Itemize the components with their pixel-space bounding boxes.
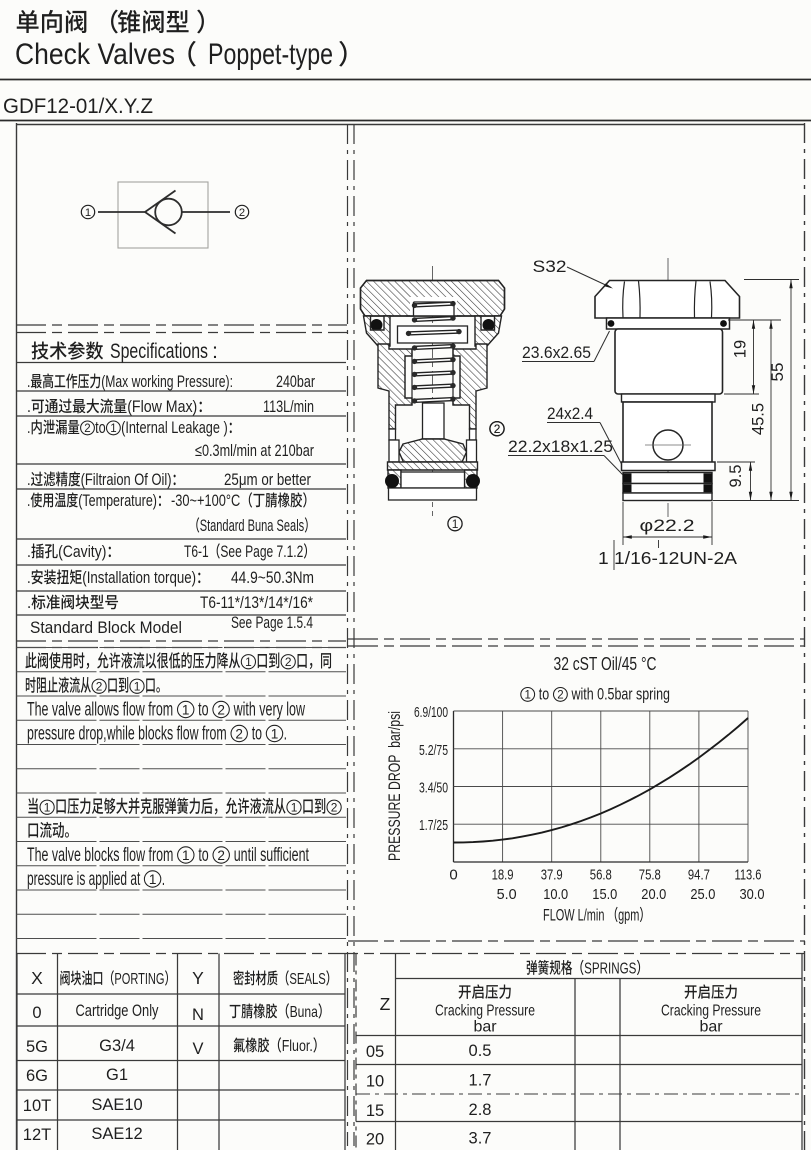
svg-text:.: . <box>27 419 31 437</box>
svg-text:9.5: 9.5 <box>727 465 745 488</box>
svg-text:2: 2 <box>217 702 225 717</box>
svg-text:pressure drop,while blocks flo: pressure drop,while blocks flow from <box>27 723 230 745</box>
svg-text:1: 1 <box>182 848 190 863</box>
svg-text:55: 55 <box>768 363 787 382</box>
svg-text:32 cST Oil/45 °C: 32 cST Oil/45 °C <box>554 653 657 674</box>
svg-text:113L/min: 113L/min <box>263 398 314 416</box>
svg-text:30.0: 30.0 <box>740 886 765 903</box>
svg-text:until sufficient: until sufficient <box>230 844 309 866</box>
svg-text:bar: bar <box>699 1019 723 1036</box>
svg-text:to: to <box>535 686 552 704</box>
svg-text::: : <box>212 339 218 363</box>
svg-text:-30~+100°C: -30~+100°C <box>171 492 240 510</box>
svg-text:23.6x2.65: 23.6x2.65 <box>522 344 591 362</box>
svg-text:T6-1: T6-1 <box>184 543 209 561</box>
svg-text:.: . <box>27 398 31 416</box>
svg-text:2.8: 2.8 <box>469 1101 492 1119</box>
svg-text:Standard Block Model: Standard Block Model <box>30 619 182 637</box>
svg-text:to: to <box>195 699 212 721</box>
svg-text:1: 1 <box>271 726 279 741</box>
svg-text:45.5: 45.5 <box>750 403 768 435</box>
svg-text:(Filtraion Of Oil): (Filtraion Of Oil) <box>81 471 172 489</box>
svg-text:15.0: 15.0 <box>592 886 617 903</box>
svg-text:56.8: 56.8 <box>590 867 612 884</box>
svg-text:GDF12-01/X.Y.Z: GDF12-01/X.Y.Z <box>3 94 153 118</box>
svg-text:.: . <box>27 594 31 612</box>
svg-text:gpm: gpm <box>618 907 639 925</box>
svg-text:to: to <box>248 723 265 745</box>
svg-text:6G: 6G <box>26 1067 48 1085</box>
svg-text:05: 05 <box>366 1043 384 1061</box>
svg-text:X: X <box>31 968 43 988</box>
svg-text:The valve blocks flow from: The valve blocks flow from <box>27 844 177 866</box>
svg-text:1: 1 <box>149 872 157 887</box>
svg-text:2: 2 <box>239 207 245 219</box>
svg-text:20: 20 <box>366 1131 384 1149</box>
svg-text:.: . <box>284 723 287 745</box>
svg-text:10T: 10T <box>23 1097 51 1115</box>
svg-text:3.7: 3.7 <box>469 1130 492 1148</box>
svg-text:1: 1 <box>182 702 190 717</box>
svg-text:1: 1 <box>85 207 91 219</box>
svg-text:to: to <box>195 844 212 866</box>
svg-text:2: 2 <box>557 690 563 702</box>
svg-text:1.7: 1.7 <box>469 1072 492 1090</box>
svg-text:1: 1 <box>245 655 252 669</box>
svg-text:Poppet-type: Poppet-type <box>208 38 333 71</box>
svg-text:0.5: 0.5 <box>469 1042 492 1060</box>
svg-text:with very low: with very low <box>230 699 305 721</box>
svg-text:.: . <box>27 492 30 510</box>
svg-text:.: . <box>27 569 31 587</box>
svg-text:(Flow Max): (Flow Max) <box>127 398 197 416</box>
svg-text:18.9: 18.9 <box>492 867 514 884</box>
svg-text:SEALS: SEALS <box>289 971 325 988</box>
svg-text:1: 1 <box>110 423 116 435</box>
svg-text:Check Valves: Check Valves <box>15 38 175 71</box>
svg-text:φ22.2: φ22.2 <box>640 516 695 535</box>
svg-text:2: 2 <box>331 801 338 815</box>
svg-text:Cracking Pressure: Cracking Pressure <box>661 1003 761 1020</box>
svg-text:SAE10: SAE10 <box>91 1096 142 1114</box>
svg-text:with 0.5bar spring: with 0.5bar spring <box>568 686 670 704</box>
svg-text:1: 1 <box>291 801 298 815</box>
svg-text:1: 1 <box>452 517 459 531</box>
svg-text:SAE12: SAE12 <box>91 1125 142 1143</box>
svg-text:Buna: Buna <box>290 1004 318 1021</box>
svg-text:1: 1 <box>524 690 530 702</box>
svg-text:to: to <box>95 419 106 437</box>
svg-text:12T: 12T <box>23 1126 51 1144</box>
svg-text:pressure is applied at: pressure is applied at <box>27 868 144 890</box>
svg-text:2: 2 <box>96 680 103 694</box>
svg-text:(Max working Pressure):: (Max working Pressure): <box>101 373 233 391</box>
svg-text:10: 10 <box>366 1073 384 1091</box>
svg-text:113.6: 113.6 <box>735 867 762 884</box>
svg-text:FLOW L/min: FLOW L/min <box>543 907 608 925</box>
svg-text:75.8: 75.8 <box>639 867 661 884</box>
svg-text:≤0.3ml/min at 210bar: ≤0.3ml/min at 210bar <box>195 442 314 460</box>
svg-text:N: N <box>192 1006 204 1024</box>
svg-text:G1: G1 <box>106 1066 128 1084</box>
svg-text:.: . <box>162 868 165 890</box>
svg-text:240bar: 240bar <box>276 373 315 391</box>
svg-text:(Internal Leakage ): (Internal Leakage ) <box>121 419 228 437</box>
svg-text:S32: S32 <box>533 257 567 276</box>
svg-text:.: . <box>27 373 30 391</box>
svg-text:19: 19 <box>732 340 750 358</box>
svg-text:10.0: 10.0 <box>543 886 568 903</box>
svg-text:(Temperature): (Temperature) <box>78 492 157 510</box>
svg-text:37.9: 37.9 <box>541 867 563 884</box>
svg-text:See Page 7.1.2: See Page 7.1.2 <box>220 543 303 561</box>
svg-text:25μm or better: 25μm or better <box>224 471 311 489</box>
svg-text:.: . <box>27 471 31 489</box>
svg-text:T6-11*/13*/14*/16*: T6-11*/13*/14*/16* <box>200 594 313 612</box>
svg-text:Specifications: Specifications <box>110 339 208 363</box>
svg-text:1: 1 <box>134 680 141 694</box>
svg-text:PRESSURE DROP bar/psi: PRESSURE DROP bar/psi <box>386 711 404 861</box>
svg-text:1.7/25: 1.7/25 <box>419 817 448 834</box>
svg-text:2: 2 <box>494 422 501 436</box>
svg-text:3.4/50: 3.4/50 <box>419 780 448 797</box>
svg-text:(Cavity): (Cavity) <box>58 543 106 561</box>
svg-text:PORTING: PORTING <box>114 971 164 988</box>
svg-text:22.2x18x1.25: 22.2x18x1.25 <box>508 438 613 456</box>
svg-text:1: 1 <box>44 801 51 815</box>
svg-text:0: 0 <box>32 1004 41 1022</box>
svg-text:25.0: 25.0 <box>690 886 715 903</box>
svg-text:bar: bar <box>473 1019 497 1036</box>
svg-text:2: 2 <box>217 848 225 863</box>
svg-text:6.9/100: 6.9/100 <box>414 704 448 721</box>
svg-text:15: 15 <box>366 1102 384 1120</box>
svg-text:.: . <box>27 543 31 561</box>
svg-text:2: 2 <box>285 655 292 669</box>
svg-text:V: V <box>192 1040 203 1058</box>
svg-text:(Installation torque): (Installation torque) <box>82 569 196 587</box>
svg-text:Cartridge Only: Cartridge Only <box>76 1002 160 1020</box>
svg-text:Y: Y <box>192 968 204 988</box>
svg-text:2: 2 <box>84 423 90 435</box>
svg-text:Cracking Pressure: Cracking Pressure <box>435 1003 535 1020</box>
svg-text:Standard Buna Seals: Standard Buna Seals <box>200 517 305 535</box>
svg-text:20.0: 20.0 <box>641 886 666 903</box>
svg-text:Z: Z <box>380 994 391 1014</box>
svg-text:Fluor.: Fluor. <box>282 1038 313 1055</box>
svg-text:5.2/75: 5.2/75 <box>419 742 448 759</box>
svg-text:1 1/16-12UN-2A: 1 1/16-12UN-2A <box>598 548 737 568</box>
svg-text:SPRINGS: SPRINGS <box>584 961 636 978</box>
svg-text:See Page 1.5.4: See Page 1.5.4 <box>231 614 313 632</box>
svg-text:5G: 5G <box>26 1038 48 1056</box>
svg-text:G3/4: G3/4 <box>99 1037 135 1055</box>
svg-text:0: 0 <box>449 867 457 884</box>
svg-text:2: 2 <box>235 726 243 741</box>
svg-text:44.9~50.3Nm: 44.9~50.3Nm <box>231 569 314 587</box>
svg-text:24x2.4: 24x2.4 <box>547 405 593 423</box>
svg-text:The valve allows flow from: The valve allows flow from <box>27 699 177 721</box>
svg-text:94.7: 94.7 <box>688 867 710 884</box>
svg-text:5.0: 5.0 <box>497 886 517 903</box>
